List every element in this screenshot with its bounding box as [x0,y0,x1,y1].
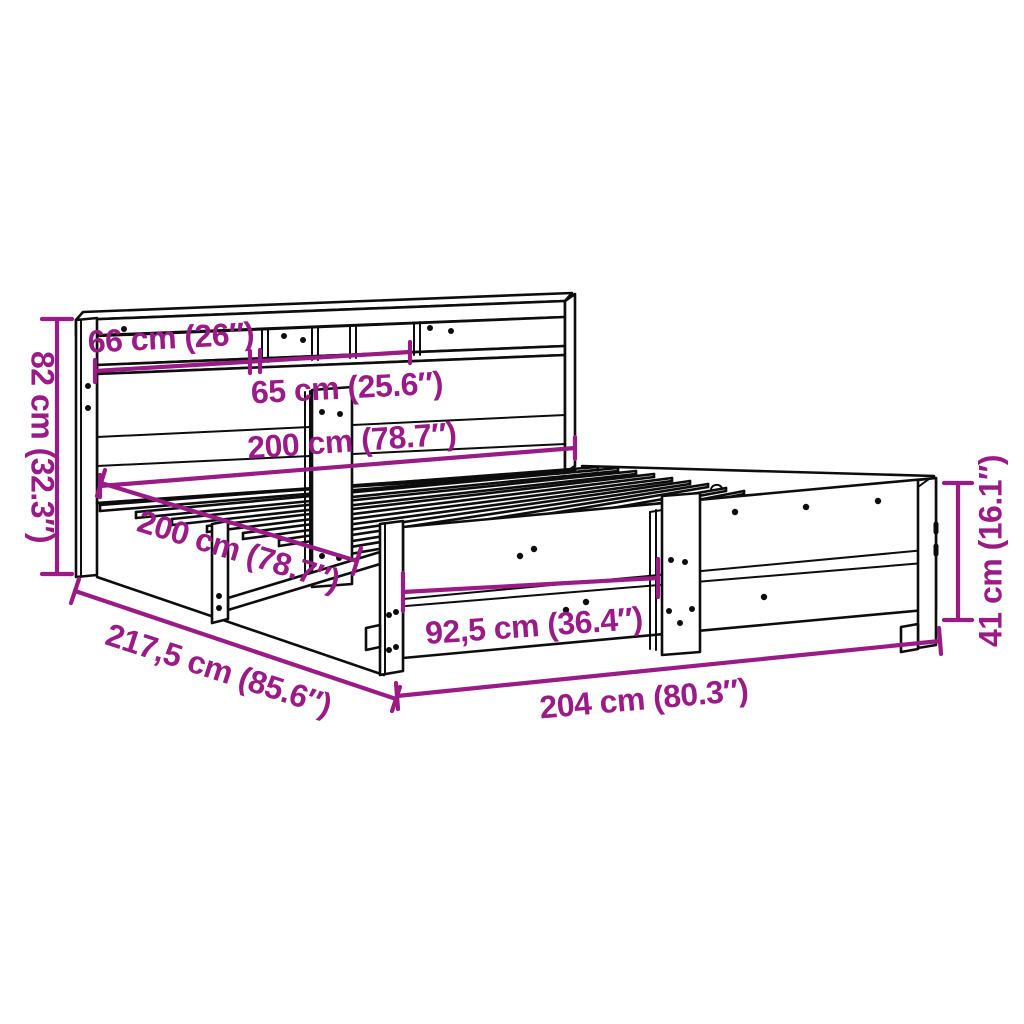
dimension-side-height: 41 cm (16.1″) [944,455,1008,647]
foot-right-foot-block [901,624,918,652]
dimension-diagram-canvas: 66 cm (26″) 65 cm (25.6″) 200 cm (78.7″)… [0,0,1024,1024]
dimension-tick [939,628,941,654]
bed-dimension-diagram: 66 cm (26″) 65 cm (25.6″) 200 cm (78.7″)… [0,0,1024,1024]
dimension-label-headboard-height: 82 cm (32.3″) [25,351,61,543]
dimension-tick [396,683,398,709]
center-bracket-plate [662,493,700,655]
dimension-headboard-height: 82 cm (32.3″) [25,319,72,574]
dimension-label-side-height: 41 cm (16.1″) [972,455,1008,647]
dimension-label-total-length: 217,5 cm (85.6″) [101,616,336,723]
foot-right-corner-post [918,478,936,648]
foot-left-foot-block [366,625,380,650]
foot-left-corner-post [380,521,403,675]
